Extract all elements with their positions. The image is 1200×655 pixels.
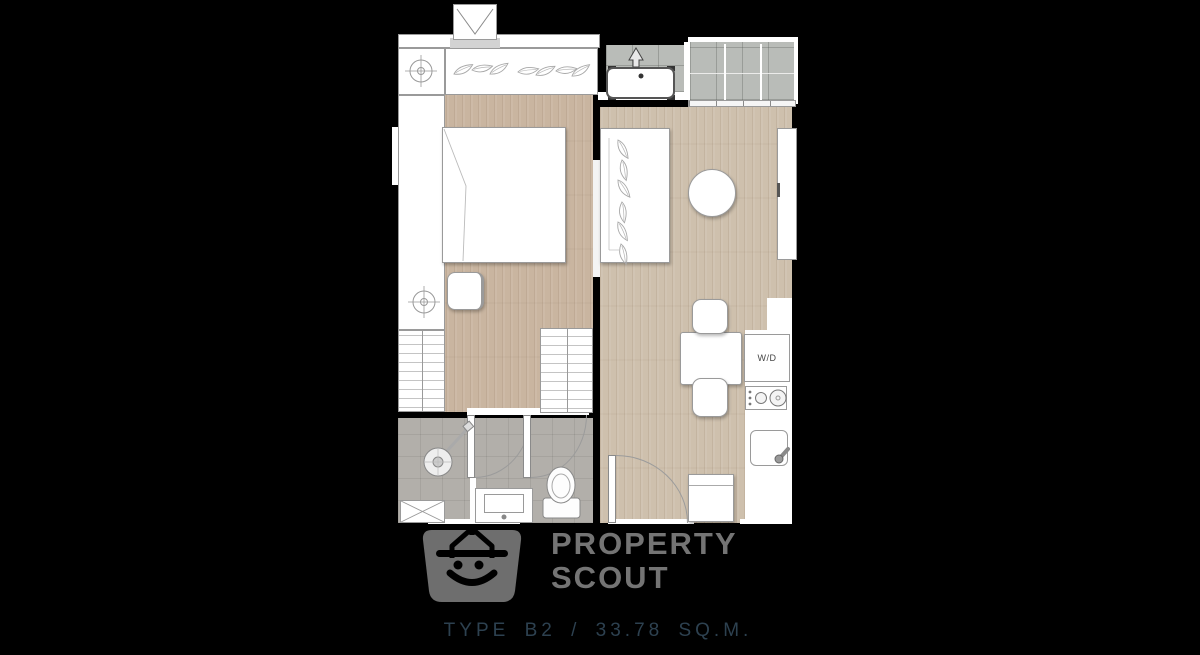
balcony-right-wall bbox=[794, 37, 798, 104]
vanity-basin bbox=[484, 494, 524, 513]
ac-ledge-sill bbox=[598, 92, 688, 100]
entrance-door-leaf bbox=[608, 455, 616, 523]
tv-mark bbox=[777, 183, 780, 197]
drawer-unit bbox=[540, 328, 593, 413]
brand-line-2: SCOUT bbox=[551, 561, 738, 595]
balcony-sliding-door bbox=[688, 100, 796, 107]
desk-chair bbox=[447, 272, 484, 310]
built-in-desk-counter bbox=[398, 95, 445, 330]
fridge-door-line bbox=[689, 485, 733, 486]
wardrobe bbox=[445, 48, 598, 95]
dining-chair bbox=[692, 378, 728, 417]
ac-ledge-floor bbox=[606, 45, 684, 92]
balcony-mullion bbox=[724, 44, 726, 100]
floor-plan: W/D bbox=[380, 0, 816, 540]
fridge bbox=[688, 474, 734, 522]
closet-sofa-console bbox=[600, 128, 670, 263]
brand-wordmark: PROPERTY SCOUT bbox=[551, 527, 738, 595]
unit-type-caption: TYPE B2 / 33.78 SQ.M. bbox=[380, 620, 816, 642]
toilet-door-leaf bbox=[523, 415, 531, 478]
ac-outdoor-unit bbox=[453, 4, 497, 40]
kitchen-sink bbox=[750, 430, 788, 466]
tv-console bbox=[777, 128, 797, 260]
kitchen-counter-upper bbox=[767, 298, 792, 332]
round-coffee-table bbox=[688, 169, 736, 217]
bedroom-living-door-panel bbox=[593, 160, 600, 277]
stove bbox=[745, 386, 787, 410]
screenshot-root: W/D bbox=[0, 0, 1200, 655]
brand-line-1: PROPERTY bbox=[551, 527, 738, 561]
washer-dryer: W/D bbox=[744, 334, 790, 382]
balcony-floor bbox=[690, 42, 796, 100]
balcony-rail-line bbox=[690, 73, 796, 74]
shaft-box bbox=[400, 500, 445, 523]
column-box bbox=[398, 48, 445, 95]
dining-chair bbox=[692, 299, 728, 334]
bathroom-door-leaf bbox=[467, 415, 475, 478]
property-scout-logo-icon bbox=[418, 526, 526, 606]
vanity-sink bbox=[475, 488, 533, 523]
bathroom-door-threshold bbox=[467, 408, 531, 415]
balcony-mullion bbox=[760, 44, 762, 100]
washer-dryer-label: W/D bbox=[758, 353, 777, 363]
drawer-unit bbox=[398, 330, 445, 412]
bed bbox=[442, 127, 566, 263]
balcony-top-wall bbox=[688, 37, 798, 42]
